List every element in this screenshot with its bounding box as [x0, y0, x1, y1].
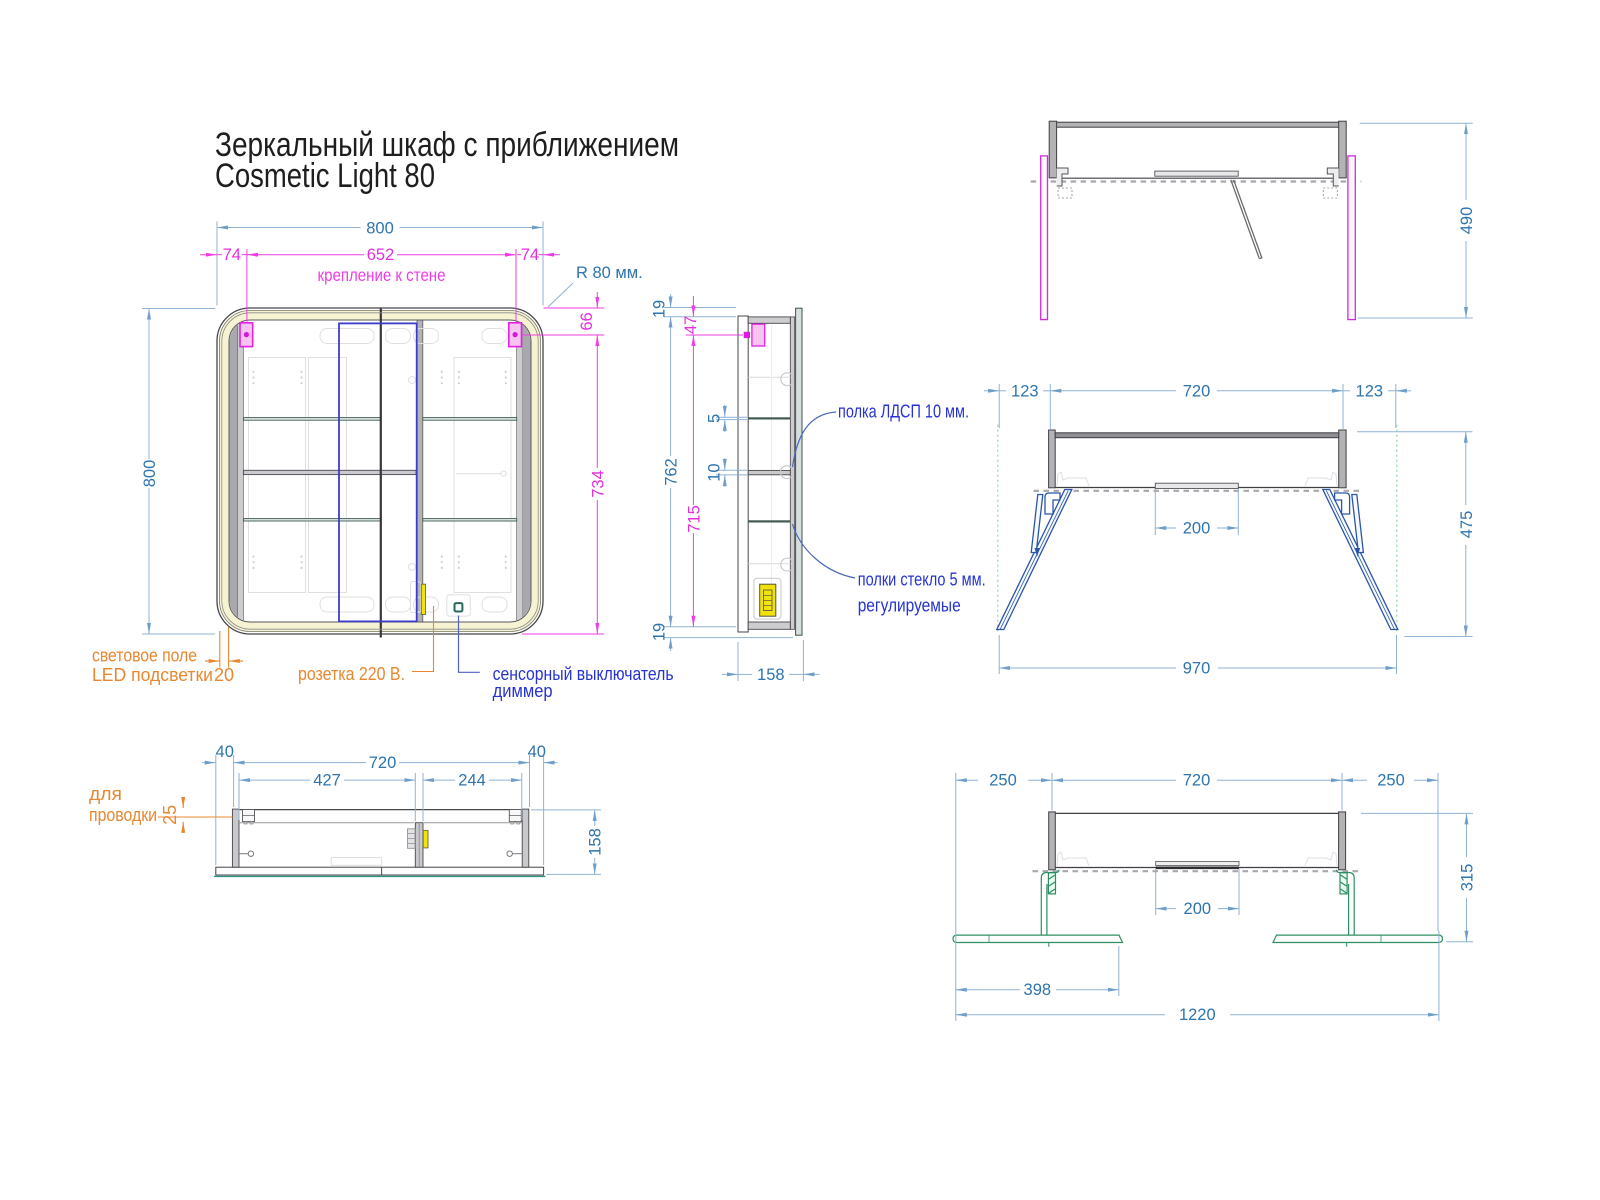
svg-text:74: 74 — [223, 246, 241, 264]
svg-text:проводки: проводки — [89, 805, 157, 825]
svg-text:47: 47 — [682, 316, 700, 334]
svg-text:250: 250 — [1377, 772, 1405, 790]
svg-text:25: 25 — [160, 805, 180, 825]
svg-text:40: 40 — [528, 743, 546, 761]
svg-text:розетка 220 В.: розетка 220 В. — [298, 664, 405, 684]
svg-text:20: 20 — [214, 665, 234, 685]
svg-text:полки стекло 5 мм.: полки стекло 5 мм. — [858, 570, 986, 590]
svg-text:398: 398 — [1024, 981, 1052, 999]
svg-text:для: для — [89, 784, 122, 804]
svg-text:762: 762 — [663, 458, 681, 486]
svg-text:R 80 мм.: R 80 мм. — [576, 264, 643, 282]
svg-text:крепление к стене: крепление к стене — [318, 265, 446, 285]
svg-text:800: 800 — [141, 460, 159, 488]
svg-text:200: 200 — [1184, 900, 1212, 918]
svg-text:световое поле: световое поле — [92, 646, 197, 666]
svg-text:1220: 1220 — [1179, 1006, 1216, 1024]
svg-text:720: 720 — [1183, 382, 1211, 400]
svg-text:734: 734 — [589, 470, 607, 498]
svg-text:5: 5 — [706, 414, 724, 423]
svg-text:490: 490 — [1458, 207, 1476, 235]
svg-text:158: 158 — [757, 666, 785, 684]
svg-text:475: 475 — [1458, 511, 1476, 539]
svg-text:регулируемые: регулируемые — [858, 596, 961, 616]
svg-text:970: 970 — [1183, 660, 1211, 678]
svg-text:158: 158 — [587, 828, 605, 856]
svg-text:427: 427 — [313, 772, 341, 790]
svg-text:715: 715 — [685, 505, 703, 533]
svg-text:40: 40 — [216, 743, 234, 761]
svg-text:Cosmetic Light 80: Cosmetic Light 80 — [215, 157, 435, 195]
svg-text:200: 200 — [1183, 520, 1211, 538]
svg-text:244: 244 — [458, 772, 486, 790]
svg-text:полка ЛДСП 10 мм.: полка ЛДСП 10 мм. — [838, 402, 969, 422]
svg-text:74: 74 — [521, 246, 539, 264]
svg-text:10: 10 — [706, 463, 724, 481]
svg-text:19: 19 — [651, 623, 669, 641]
svg-text:250: 250 — [989, 772, 1017, 790]
svg-text:123: 123 — [1011, 382, 1039, 400]
svg-text:800: 800 — [366, 220, 394, 238]
svg-text:LED подсветки: LED подсветки — [92, 665, 213, 685]
svg-text:315: 315 — [1459, 864, 1477, 892]
svg-text:123: 123 — [1356, 382, 1384, 400]
svg-text:720: 720 — [1183, 772, 1211, 790]
svg-text:720: 720 — [369, 754, 397, 772]
svg-text:66: 66 — [578, 312, 596, 330]
svg-text:652: 652 — [367, 246, 395, 264]
svg-text:диммер: диммер — [493, 681, 553, 701]
svg-text:19: 19 — [651, 300, 669, 318]
